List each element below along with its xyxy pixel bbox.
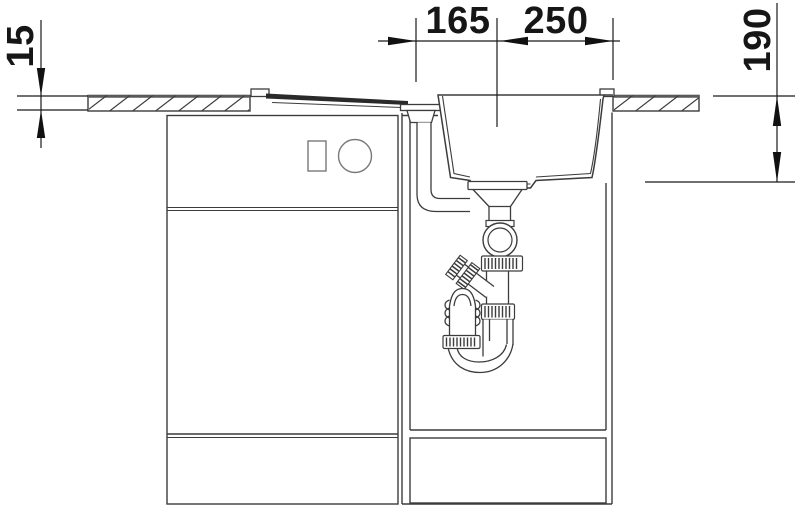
socket-circle-icon	[339, 140, 372, 173]
dim-label-250: 250	[524, 0, 589, 42]
drain-funnel	[468, 182, 527, 222]
sink-installation-drawing: 165 250 15 190	[0, 0, 800, 509]
dimension-labels: 165 250 15 190	[0, 0, 779, 72]
coupling-nut-upper	[482, 256, 523, 271]
sink-bowl	[438, 95, 613, 188]
coupling-nut-middle	[482, 304, 515, 320]
arrow-right-icon	[585, 37, 613, 45]
drainboard-drain-cup	[401, 105, 442, 123]
arrow-right-icon	[388, 37, 416, 45]
dim-label-165: 165	[426, 0, 491, 42]
arrow-up-icon	[773, 96, 781, 126]
dim-label-15: 15	[0, 24, 42, 67]
dim-label-190: 190	[737, 8, 779, 73]
siphon-trap	[443, 289, 513, 373]
coupling-nut-lower	[443, 336, 480, 349]
arrow-down-icon	[773, 152, 781, 182]
base-cabinet-left	[167, 116, 398, 505]
countertop-left	[84, 93, 271, 113]
drainboard-section	[266, 94, 408, 108]
arrow-down-icon	[37, 68, 45, 96]
technical-diagram-canvas: 165 250 15 190	[0, 0, 800, 509]
socket-rect-icon	[308, 141, 326, 171]
pipe-ring-joint	[483, 223, 517, 257]
trap-cup	[445, 289, 480, 337]
dimension-lines	[17, 3, 795, 182]
arrow-up-icon	[37, 110, 45, 138]
countertop-right	[610, 93, 705, 113]
